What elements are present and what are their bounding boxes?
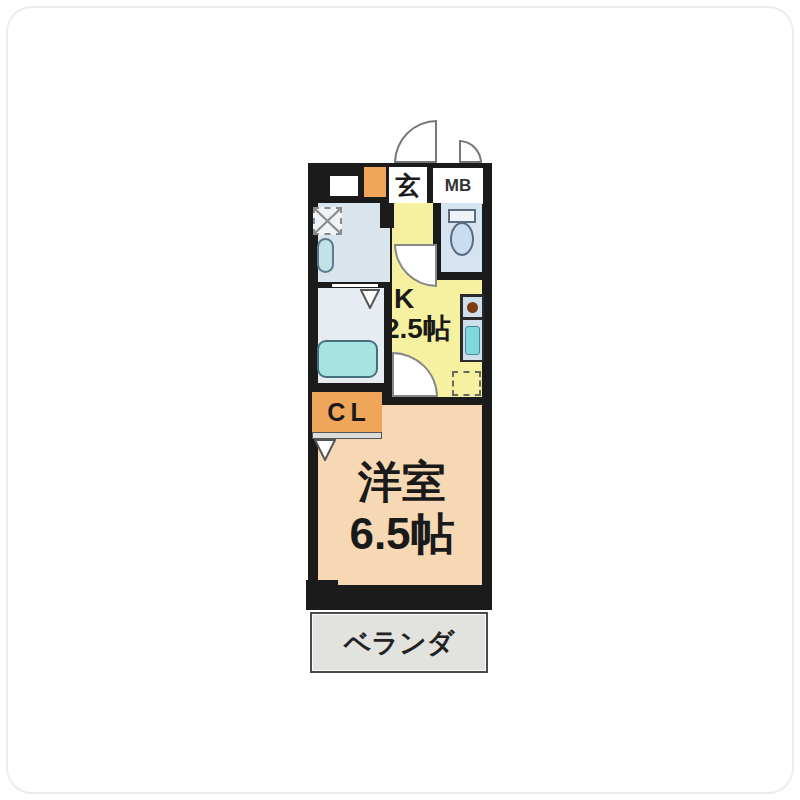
corner-pillar — [306, 580, 338, 610]
balcony-label: ベランダ — [344, 625, 455, 661]
pipe-space-box — [330, 176, 358, 196]
bathtub-icon — [317, 340, 378, 378]
stove-burner-icon — [467, 302, 478, 313]
refrigerator-space-icon — [452, 371, 481, 396]
bathroom-door-mark — [360, 289, 380, 309]
main-room-name-label: 洋室 — [318, 458, 486, 506]
meter-box-label: MB — [445, 176, 471, 196]
meter-box-area: MB — [433, 168, 483, 204]
genkan-area: 玄 — [389, 167, 427, 204]
genkan-label: 玄 — [396, 169, 421, 202]
vanity-basin-icon — [317, 238, 334, 273]
toilet-tank-icon — [448, 209, 476, 223]
toilet-icon — [450, 222, 474, 256]
washing-machine-space-icon — [313, 207, 342, 235]
bathroom-slide-door-line — [332, 284, 378, 287]
burner-box — [463, 297, 482, 317]
main-room-size-label: 6.5帖 — [318, 510, 486, 558]
closet-area: CL — [312, 392, 382, 432]
washroom-wall-stub — [380, 203, 394, 228]
closet-door-panel — [312, 432, 382, 439]
shoe-storage-box — [364, 167, 386, 197]
balcony-area: ベランダ — [310, 612, 488, 673]
closet-label: CL — [327, 398, 370, 427]
floorplan-image: 玄 MB CL — [0, 0, 800, 800]
sink-box — [463, 320, 482, 360]
kitchen-sink-icon — [465, 326, 480, 355]
kitchen-size-label: 2.5帖 — [384, 310, 451, 348]
